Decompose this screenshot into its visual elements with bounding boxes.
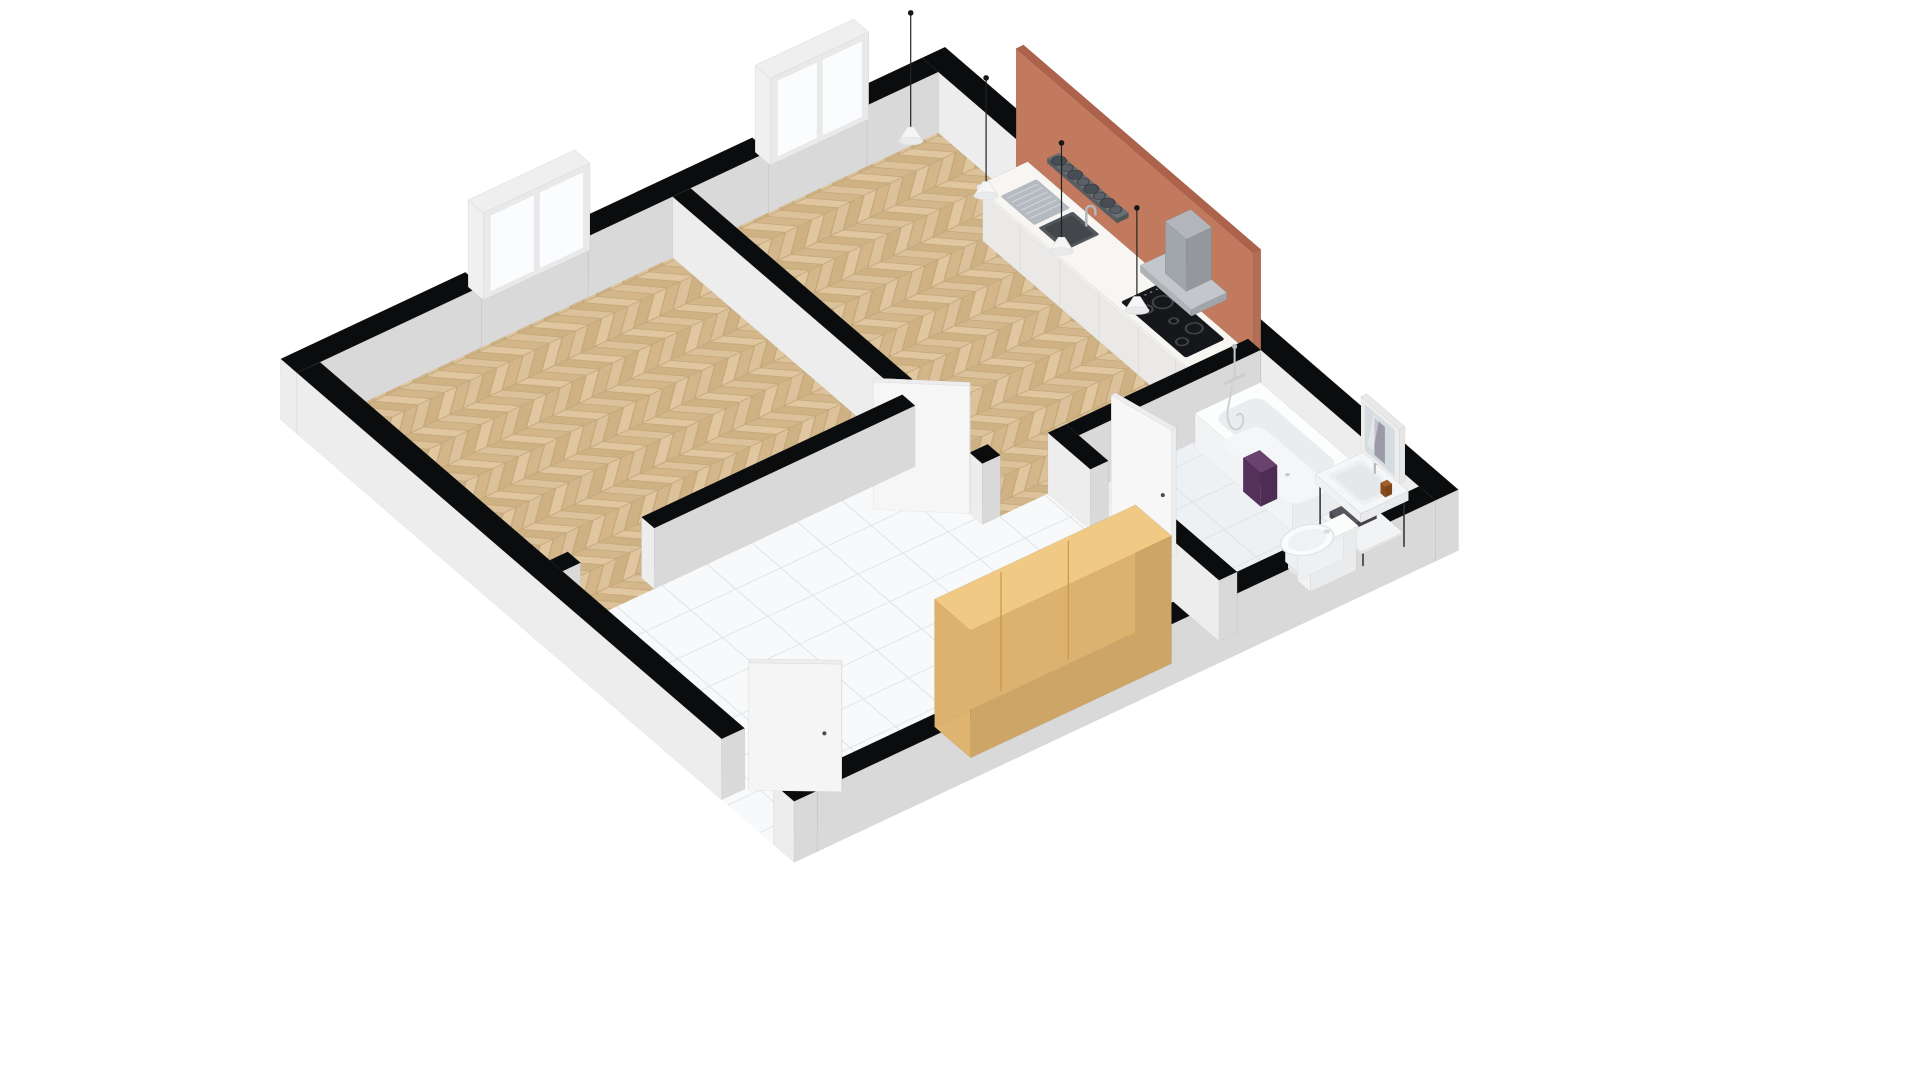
bathroom-door-handle: [1161, 493, 1165, 497]
vanity-bottle: [1381, 480, 1392, 498]
shower-head: [1232, 344, 1237, 349]
floorplan-canvas[interactable]: [0, 0, 1920, 1080]
floorplan-3d-view: [0, 0, 1920, 1080]
entrance-door-handle: [822, 731, 826, 735]
entrance-door: [749, 659, 842, 792]
wall-dining-door-stub: [970, 444, 1001, 524]
range-hood-chimney: [1165, 209, 1211, 291]
